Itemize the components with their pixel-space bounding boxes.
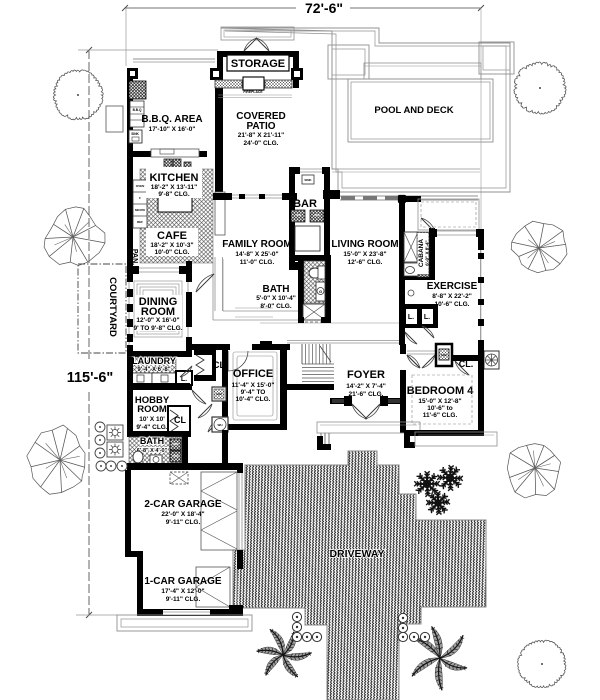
svg-text:14'-2" X 7'-4": 14'-2" X 7'-4" [346,383,386,390]
svg-text:10'-6" to: 10'-6" to [427,405,453,412]
svg-text:EXERCISE: EXERCISE [427,281,478,292]
svg-text:ROOM: ROOM [137,404,167,415]
svg-text:15'-0" X 23'-8": 15'-0" X 23'-8" [343,251,386,258]
svg-text:AHU: AHU [441,353,448,357]
svg-text:F: F [139,196,141,200]
svg-text:9'-4" CLG.: 9'-4" CLG. [136,424,168,431]
svg-text:L.: L. [424,314,430,321]
svg-text:BATH: BATH [140,436,164,446]
svg-text:115'-6": 115'-6" [67,370,114,386]
svg-text:2-CAR GARAGE: 2-CAR GARAGE [144,499,222,510]
svg-text:72'-6": 72'-6" [305,0,343,16]
svg-text:18'-2" X 13'-11": 18'-2" X 13'-11" [151,184,197,191]
svg-text:15'-0" X 12'-8": 15'-0" X 12'-8" [418,398,461,405]
svg-text:OFFICE: OFFICE [233,368,273,380]
svg-text:6'-0" X 8'-4": 6'-0" X 8'-4" [425,240,430,265]
svg-text:DRIVEWAY: DRIVEWAY [329,548,384,560]
svg-text:TAN: TAN [295,213,301,217]
svg-text:21'-6" CLG.: 21'-6" CLG. [349,391,384,398]
svg-text:CAFE: CAFE [157,230,187,242]
svg-text:B.B.Q. AREA: B.B.Q. AREA [141,114,202,125]
svg-text:REF: REF [314,213,320,217]
svg-text:MED: MED [173,442,179,446]
svg-text:24'-0" CLG.: 24'-0" CLG. [244,140,279,147]
svg-text:G: G [319,289,322,294]
svg-text:REF: REF [137,220,143,224]
svg-text:PWD: PWD [172,454,178,458]
svg-text:L.: L. [181,376,187,383]
svg-text:OVEN: OVEN [136,184,145,188]
svg-text:17'-4" X 12'-0": 17'-4" X 12'-0" [161,588,204,595]
svg-text:5'-0" X 10'-4": 5'-0" X 10'-4" [256,295,296,302]
svg-text:SINK: SINK [131,132,139,136]
svg-text:11'-6" CLG.: 11'-6" CLG. [423,412,458,419]
svg-text:BAR: BAR [293,198,317,210]
svg-text:8'-0" CLG.: 8'-0" CLG. [260,303,292,310]
svg-text:PATIO: PATIO [246,121,275,132]
svg-text:10' X 10': 10' X 10' [139,416,165,423]
svg-text:18'-2" X 10'-3": 18'-2" X 10'-3" [150,242,193,249]
svg-text:9'-8" CLG.: 9'-8" CLG. [158,191,190,198]
svg-text:1-CAR GARAGE: 1-CAR GARAGE [144,576,222,587]
svg-text:FOYER: FOYER [347,369,385,381]
svg-text:STORAGE: STORAGE [231,58,285,70]
svg-text:WH: WH [218,423,223,427]
svg-text:10'-6" CLG.: 10'-6" CLG. [435,301,470,308]
svg-text:POOL AND DECK: POOL AND DECK [374,105,453,116]
svg-text:LAUNDRY: LAUNDRY [132,356,176,366]
svg-text:KITCHEN: KITCHEN [150,172,199,184]
svg-text:FAMILY ROOM: FAMILY ROOM [222,239,291,250]
svg-text:10'-0" CLG.: 10'-0" CLG. [155,249,190,256]
svg-text:BATH: BATH [262,284,289,295]
svg-text:11'-0" CLG.: 11'-0" CLG. [240,259,275,266]
svg-text:9'-11" CLG.: 9'-11" CLG. [166,519,201,526]
svg-text:11'-4" X 15'-0": 11'-4" X 15'-0" [232,382,275,389]
svg-text:12'-6" CLG.: 12'-6" CLG. [348,259,383,266]
svg-text:10'-4" CLG.: 10'-4" CLG. [236,396,271,403]
svg-text:8'-8" X 22'-2": 8'-8" X 22'-2" [432,293,472,300]
svg-text:CL: CL [174,415,186,425]
svg-text:MICRO: MICRO [135,208,146,212]
svg-text:B.B.Q: B.B.Q [133,108,142,112]
svg-text:PAN.: PAN. [131,249,138,265]
svg-text:SINK: SINK [304,178,312,182]
svg-text:L.: L. [408,314,414,321]
svg-text:21'-8" X 21'-11": 21'-8" X 21'-11" [238,132,284,139]
svg-text:9' TO 9'-8" CLG.: 9' TO 9'-8" CLG. [133,325,182,332]
svg-text:9'-4" TO: 9'-4" TO [241,389,266,396]
svg-text:9'-4" X 6'-8": 9'-4" X 6'-8" [137,367,170,373]
svg-text:FIREPLACE: FIREPLACE [243,90,263,94]
svg-text:12'-0" X 16'-0": 12'-0" X 16'-0" [136,317,179,324]
svg-text:14'-8" X 25'-0": 14'-8" X 25'-0" [235,251,278,258]
svg-text:17'-10" X 16'-0": 17'-10" X 16'-0" [149,126,196,133]
svg-text:BEDROOM 4: BEDROOM 4 [407,385,475,397]
svg-text:22'-0" X 18'-4": 22'-0" X 18'-4" [161,511,204,518]
svg-text:COURTYARD: COURTYARD [107,277,118,337]
svg-text:9'-11" CLG.: 9'-11" CLG. [166,596,201,603]
svg-text:LIVING ROOM: LIVING ROOM [331,239,398,250]
svg-text:AHU: AHU [216,392,222,396]
